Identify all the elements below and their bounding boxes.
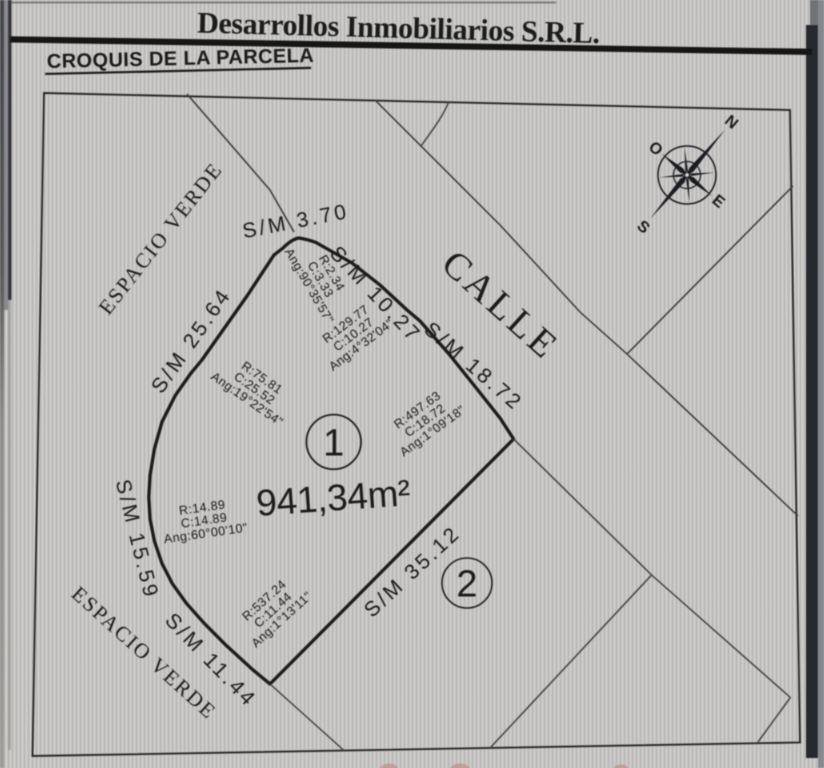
- svg-text:1: 1: [323, 423, 344, 465]
- svg-text:2: 2: [456, 564, 477, 606]
